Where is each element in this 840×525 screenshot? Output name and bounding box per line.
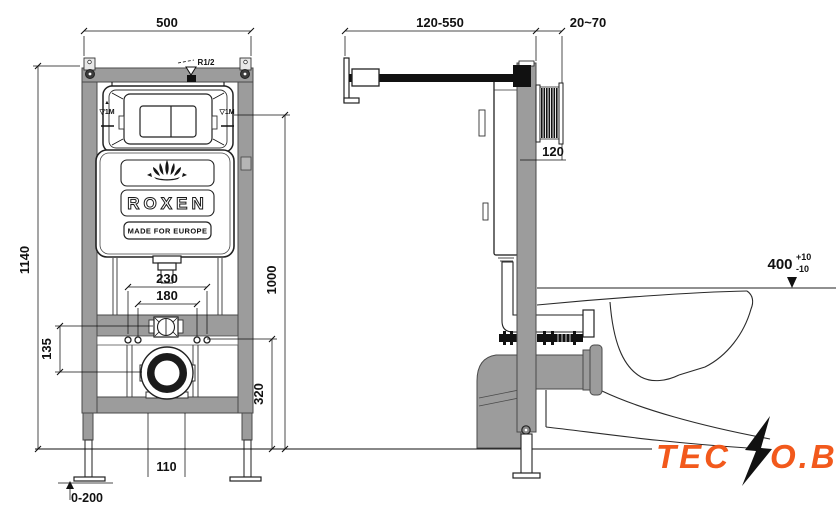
dim-seat-tol-minus-label: -10 <box>796 264 809 274</box>
tank-clip <box>479 110 485 136</box>
flush-buttons <box>140 106 196 137</box>
rod-hook <box>344 58 349 102</box>
left-foot-plate <box>74 477 105 481</box>
inlet-leader-line <box>178 60 194 63</box>
flush-neck-flange <box>153 256 181 263</box>
stud-bolt-icon <box>135 337 141 343</box>
flush-bend-fitting <box>149 317 183 337</box>
inlet-label: R1/2 <box>198 58 215 67</box>
rail-bolt-center <box>244 73 247 76</box>
seat-level-arrow-icon <box>787 277 797 288</box>
rail-clip <box>241 157 251 170</box>
right-rail <box>238 68 253 413</box>
corrugated-sleeve <box>536 83 563 144</box>
side-view: 120-550 20~70 120 400 +10 -10 <box>342 15 836 478</box>
fitting-side-plate <box>149 320 154 333</box>
dim-arm-range-label: 120-550 <box>416 15 464 30</box>
rod-sleeve <box>352 69 379 86</box>
tab-hole-icon <box>244 60 248 64</box>
threaded-rods <box>499 331 583 345</box>
post-foot-plate <box>513 473 540 478</box>
rod-hook-foot <box>344 98 359 103</box>
installation-frame-drawing: R1/2 ▲ ▽1M ▽1M <box>0 0 840 525</box>
dim-depth-label: 120 <box>542 144 564 159</box>
level-mark-right: ▽1M <box>218 109 234 116</box>
dim-seat-tol-plus-label: +10 <box>796 252 811 262</box>
fitting-side-plate <box>178 320 183 333</box>
bowl-rim-underside <box>537 291 747 305</box>
left-rail <box>82 68 97 413</box>
side-dimensions: 120-550 20~70 120 400 +10 -10 <box>342 15 811 288</box>
left-leg <box>83 413 93 440</box>
outlet-flange-outer <box>590 345 602 395</box>
flush-neck-step <box>158 263 176 270</box>
dim-wall-gap-label: 20~70 <box>570 15 607 30</box>
tank-side <box>494 80 518 255</box>
inlet-square-icon <box>187 75 196 82</box>
rail-bolt-center <box>89 73 92 76</box>
tank-bottom-steps <box>496 255 516 261</box>
bowl-basin-right <box>679 291 753 375</box>
watermark-text-left: TEC <box>656 438 731 475</box>
dim-feet-range-label: 0-200 <box>71 491 103 505</box>
feet-arrow-icon <box>66 481 74 489</box>
drain-outlet <box>140 347 195 399</box>
flush-pipe-side <box>502 262 585 332</box>
dim-bracket-offset-label: 135 <box>39 338 54 360</box>
tank-clip <box>483 203 488 220</box>
level-mark-left: ▽1M <box>98 109 114 116</box>
right-foot-plate <box>230 477 261 481</box>
dim-level-height-label: 1000 <box>264 266 279 295</box>
left-foot-tube <box>85 440 92 477</box>
plate-side-clip <box>212 116 217 129</box>
stud-bolt-icon <box>204 337 210 343</box>
cistern-side <box>479 80 518 261</box>
top-rail <box>82 68 253 82</box>
bowl-basin-left <box>610 302 679 381</box>
outlet-flange-inner <box>583 350 590 390</box>
tagline-text: MADE FOR EUROPE <box>128 227 208 236</box>
dim-bolts-inner-label: 180 <box>156 288 178 303</box>
plate-side-clip <box>119 116 124 129</box>
watermark-text-right: O.BY <box>770 438 840 475</box>
flush-plate-assembly: ▲ ▽1M ▽1M <box>98 82 234 152</box>
post-foot-tube <box>521 434 532 474</box>
tab-hole-icon <box>88 60 92 64</box>
dim-bolts-outer-label: 230 <box>156 271 178 286</box>
dim-width-label: 500 <box>156 15 178 30</box>
bowl-trap-line <box>602 391 770 439</box>
dim-outlet-height-label: 320 <box>251 383 266 405</box>
dim-pipe-width-label: 110 <box>156 460 176 474</box>
post-bolt-center <box>525 429 528 432</box>
tecnoby-watermark: TEC O.BY <box>656 416 840 486</box>
drain-elbow <box>477 355 521 448</box>
stud-bolt-icon <box>125 337 131 343</box>
right-foot-tube <box>244 440 251 477</box>
dim-height-label: 1140 <box>17 246 32 274</box>
right-leg <box>242 413 252 440</box>
post-body <box>517 63 536 432</box>
rod-clamp <box>513 65 531 87</box>
flush-pipe-flange <box>583 310 594 337</box>
lightning-bolt-icon <box>742 416 772 486</box>
level-arrow-left: ▲ <box>104 100 109 106</box>
technical-drawing-page: R1/2 ▲ ▽1M ▽1M <box>0 0 840 525</box>
front-view: R1/2 ▲ ▽1M ▽1M <box>17 15 290 505</box>
brand-logo-text: ROXEN <box>127 194 207 213</box>
stud-bolt-icon <box>194 337 200 343</box>
dim-seat-height-label: 400 <box>767 256 792 273</box>
